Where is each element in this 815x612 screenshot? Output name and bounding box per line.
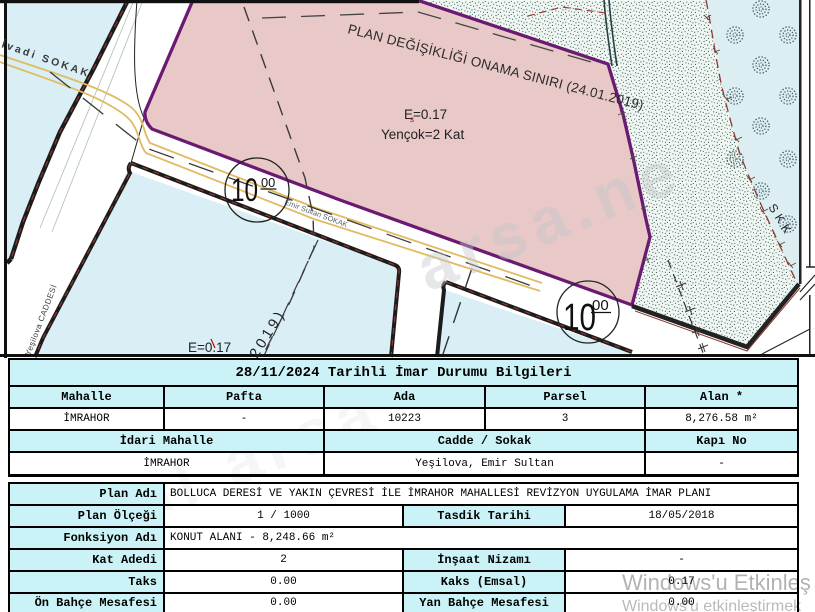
svg-text:E=0.17: E=0.17: [188, 340, 231, 355]
svg-text:Yençok=2 Kat: Yençok=2 Kat: [381, 127, 464, 142]
svg-text:10: 10: [563, 297, 596, 339]
svg-text:s: s: [410, 115, 414, 124]
svg-text:00: 00: [261, 175, 275, 190]
svg-text:00: 00: [592, 297, 609, 314]
svg-text:10: 10: [231, 173, 258, 209]
